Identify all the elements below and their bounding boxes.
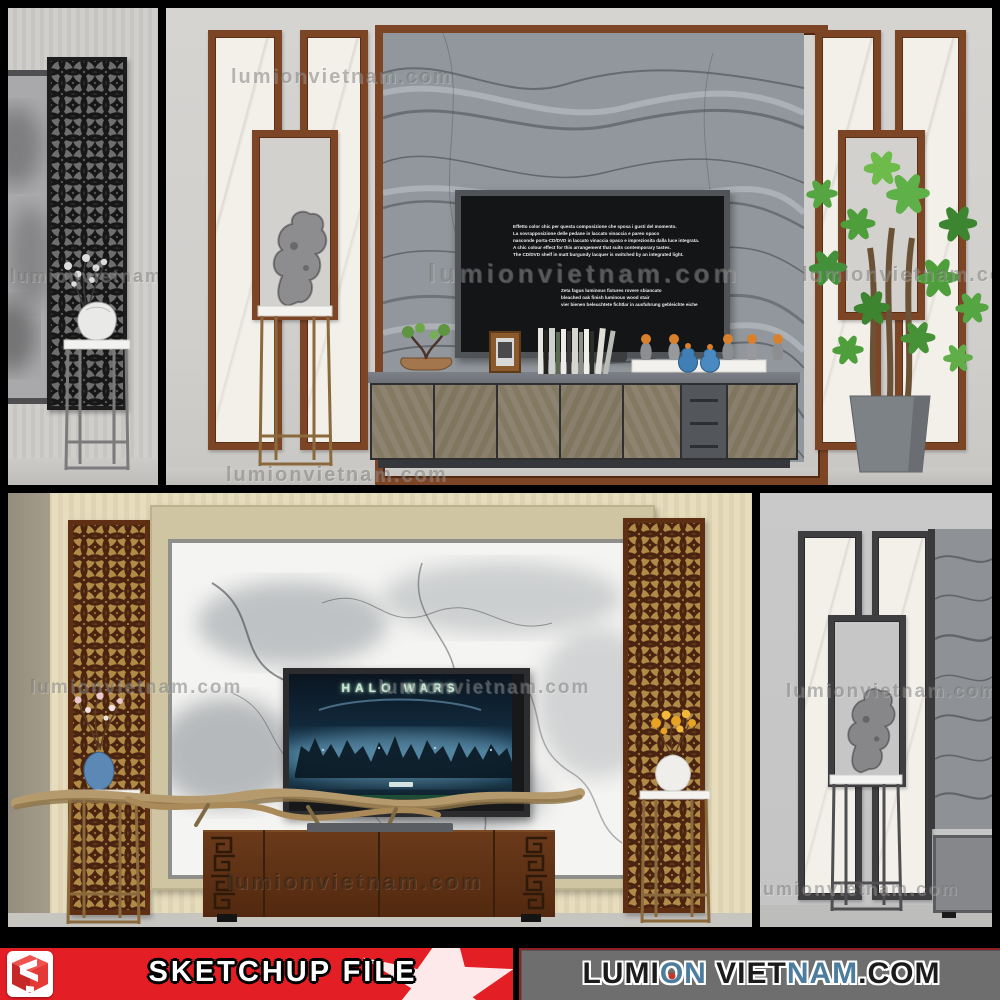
plant-foliage bbox=[806, 149, 989, 373]
cabinet-seam bbox=[493, 830, 495, 917]
brand-segment: VIET bbox=[707, 957, 787, 990]
tv-text-paragraph-2: Zeta fagus luminous fixtures rovere sbia… bbox=[561, 288, 698, 309]
wall-side-column bbox=[8, 493, 50, 927]
yellow-flowers bbox=[651, 710, 696, 735]
quadrant-top-right: Effetto color chic per questa composizio… bbox=[166, 8, 992, 485]
pedestal-stand-gray bbox=[64, 340, 130, 470]
cabinet-plinth bbox=[378, 460, 790, 468]
halo-title: HALO WARS bbox=[289, 681, 512, 695]
brand-segment: NAM bbox=[787, 957, 858, 990]
greek-key-carving-right bbox=[511, 834, 551, 914]
scholar-rock-display bbox=[252, 208, 338, 472]
pedestal-top bbox=[830, 775, 902, 784]
scholar-rock bbox=[848, 689, 895, 773]
cabinet-seam bbox=[378, 830, 380, 917]
pedestal-stand-bronze bbox=[640, 791, 710, 923]
quadrant-bottom-right: lumionvietnam.com lumionvietnam.com bbox=[760, 493, 992, 927]
brand-segment: LUMI bbox=[582, 957, 659, 990]
tv-text-line: Effetto color chic per questa composizio… bbox=[513, 224, 699, 231]
brand-segment-o: O bbox=[660, 957, 684, 991]
photo-frame-decor bbox=[490, 332, 520, 372]
display-tray bbox=[632, 360, 766, 372]
cabinet-drawer-stack bbox=[682, 385, 726, 458]
blossom-branches bbox=[78, 696, 120, 750]
scholar-rock-display-gray bbox=[826, 685, 906, 915]
drawer-handle bbox=[690, 422, 718, 425]
tv-text-line: nasconde porta-CD/DVD in laccato vinacci… bbox=[513, 238, 699, 245]
cabinet-door bbox=[561, 385, 622, 458]
tv-text-line: vier bienen beleuchtete fichtlar in ausf… bbox=[561, 302, 698, 309]
books-decor bbox=[538, 328, 616, 374]
media-cabinet-dark-wood bbox=[203, 830, 555, 917]
tv-text-line: A chic colour effect for this arrangemen… bbox=[513, 245, 699, 252]
brand-segment: .COM bbox=[858, 957, 940, 990]
marble-wall-sliver-gray bbox=[928, 529, 992, 829]
artwork-marble-texture bbox=[8, 76, 50, 386]
quadrant-top-left: lumionvietnam.com bbox=[8, 8, 158, 485]
lumion-banner: LUMION VIETNAM.COM bbox=[519, 948, 1000, 1000]
cabinet-seam bbox=[263, 830, 265, 917]
cabinet-foot bbox=[521, 914, 541, 922]
scholar-rock bbox=[274, 212, 327, 306]
cabinet-door bbox=[435, 385, 496, 458]
media-cabinet-gray bbox=[368, 372, 800, 470]
pedestal-legs bbox=[260, 316, 331, 466]
yellow-flower-display bbox=[636, 701, 716, 927]
sketchup-banner: SKETCHUP FILE bbox=[0, 948, 513, 1000]
cabinet-foot bbox=[942, 912, 956, 918]
tv-text-paragraph-1: Effetto color chic per questa composizio… bbox=[513, 224, 699, 258]
cabinet-foot bbox=[217, 914, 237, 922]
driftwood-sculpture bbox=[8, 763, 588, 838]
pedestal-display-gray bbox=[56, 246, 136, 476]
cabinet-door bbox=[498, 385, 559, 458]
quadrant-bottom-left: HALO WARS bbox=[8, 493, 752, 927]
collage-page: lumionvietnam.com bbox=[0, 0, 1000, 1000]
blossoms bbox=[74, 692, 123, 720]
pedestal-legs bbox=[832, 784, 901, 911]
cabinet-body bbox=[370, 383, 798, 460]
tv-text-line: Zeta fagus luminous fixtures rovere sbia… bbox=[561, 288, 698, 295]
stone-vase-gray bbox=[78, 302, 117, 340]
sketchup-file-label: SKETCHUP FILE bbox=[58, 956, 508, 989]
sketchup-logo-icon bbox=[7, 951, 53, 997]
tv-text-line: bleached oak finish luminous wood stair bbox=[561, 295, 698, 302]
cabinet-corner-gray bbox=[933, 835, 992, 913]
cabinet-doors-left bbox=[372, 385, 622, 458]
cabinet-door bbox=[372, 385, 433, 458]
bonsai-decor bbox=[401, 323, 452, 370]
pedestal-top bbox=[258, 306, 332, 316]
tv-text-line: La sovrapposizione delle pedane in lacca… bbox=[513, 231, 699, 238]
tv-base-bar bbox=[307, 823, 453, 832]
drawer-handle bbox=[690, 399, 718, 402]
greek-key-carving-left bbox=[207, 834, 247, 914]
cabinet-decor bbox=[386, 320, 786, 374]
white-rock-vase bbox=[656, 755, 691, 791]
cabinet-door bbox=[624, 385, 680, 458]
money-tree-plant bbox=[762, 128, 992, 473]
blossoms-gray bbox=[64, 254, 107, 287]
drawer-handle bbox=[690, 445, 718, 448]
brand-segment: N bbox=[684, 957, 707, 990]
tv-text-line: The CD/DVD shelf in matt burgundy lacque… bbox=[513, 252, 699, 259]
gray-marble-texture-small bbox=[935, 529, 992, 829]
lumion-brand-text: LUMION VIETNAM.COM bbox=[521, 957, 1000, 991]
